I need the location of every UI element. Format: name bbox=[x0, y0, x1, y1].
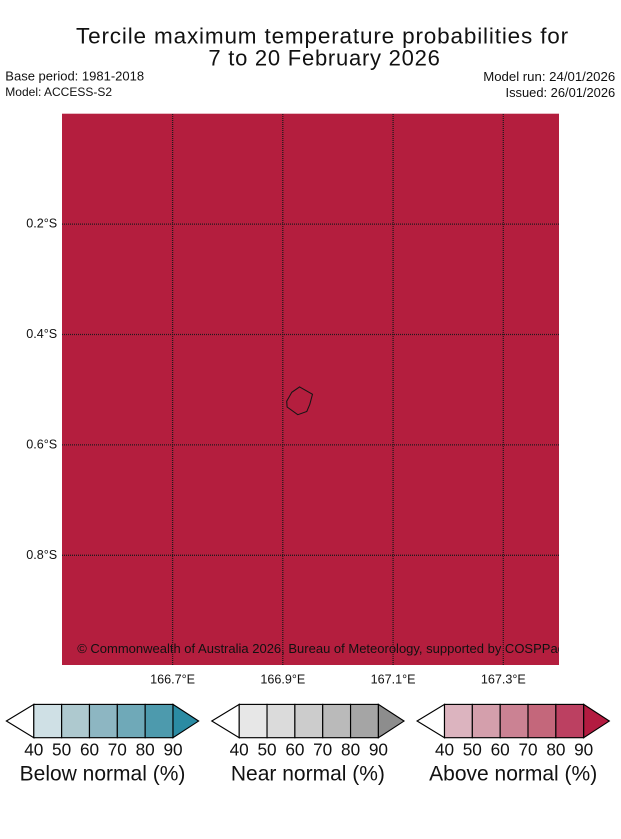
svg-text:Model run: 24/01/2026: Model run: 24/01/2026 bbox=[483, 69, 615, 84]
svg-text:Below normal (%): Below normal (%) bbox=[20, 762, 186, 785]
svg-text:Near normal (%): Near normal (%) bbox=[231, 762, 385, 785]
svg-text:166.7°E: 166.7°E bbox=[150, 673, 195, 687]
svg-text:90: 90 bbox=[574, 740, 593, 760]
svg-text:50: 50 bbox=[52, 740, 71, 760]
svg-text:60: 60 bbox=[80, 740, 99, 760]
svg-text:Issued: 26/01/2026: Issued: 26/01/2026 bbox=[506, 85, 616, 100]
svg-text:90: 90 bbox=[163, 740, 182, 760]
svg-text:50: 50 bbox=[463, 740, 482, 760]
svg-text:166.9°E: 166.9°E bbox=[260, 673, 305, 687]
svg-text:0.8°S: 0.8°S bbox=[26, 548, 57, 562]
svg-text:80: 80 bbox=[546, 740, 565, 760]
svg-text:167.1°E: 167.1°E bbox=[371, 673, 416, 687]
svg-text:70: 70 bbox=[518, 740, 537, 760]
svg-text:0.2°S: 0.2°S bbox=[26, 217, 57, 231]
svg-text:7 to 20 February 2026: 7 to 20 February 2026 bbox=[208, 46, 440, 71]
svg-text:90: 90 bbox=[369, 740, 388, 760]
svg-text:0.6°S: 0.6°S bbox=[26, 437, 57, 451]
svg-text:0.4°S: 0.4°S bbox=[26, 327, 57, 341]
svg-text:70: 70 bbox=[313, 740, 332, 760]
svg-text:40: 40 bbox=[435, 740, 454, 760]
svg-text:167.3°E: 167.3°E bbox=[481, 673, 526, 687]
svg-text:80: 80 bbox=[341, 740, 360, 760]
svg-text:Base period: 1981-2018: Base period: 1981-2018 bbox=[5, 68, 144, 83]
svg-text:50: 50 bbox=[257, 740, 276, 760]
svg-text:40: 40 bbox=[24, 740, 43, 760]
svg-text:60: 60 bbox=[285, 740, 304, 760]
svg-text:60: 60 bbox=[491, 740, 510, 760]
svg-text:Model: ACCESS-S2: Model: ACCESS-S2 bbox=[5, 85, 112, 99]
svg-text:80: 80 bbox=[136, 740, 155, 760]
svg-text:Above normal (%): Above normal (%) bbox=[429, 762, 597, 785]
svg-text:© Commonwealth of Australia 20: © Commonwealth of Australia 2026, Bureau… bbox=[77, 641, 564, 656]
svg-text:40: 40 bbox=[230, 740, 249, 760]
svg-text:70: 70 bbox=[108, 740, 127, 760]
